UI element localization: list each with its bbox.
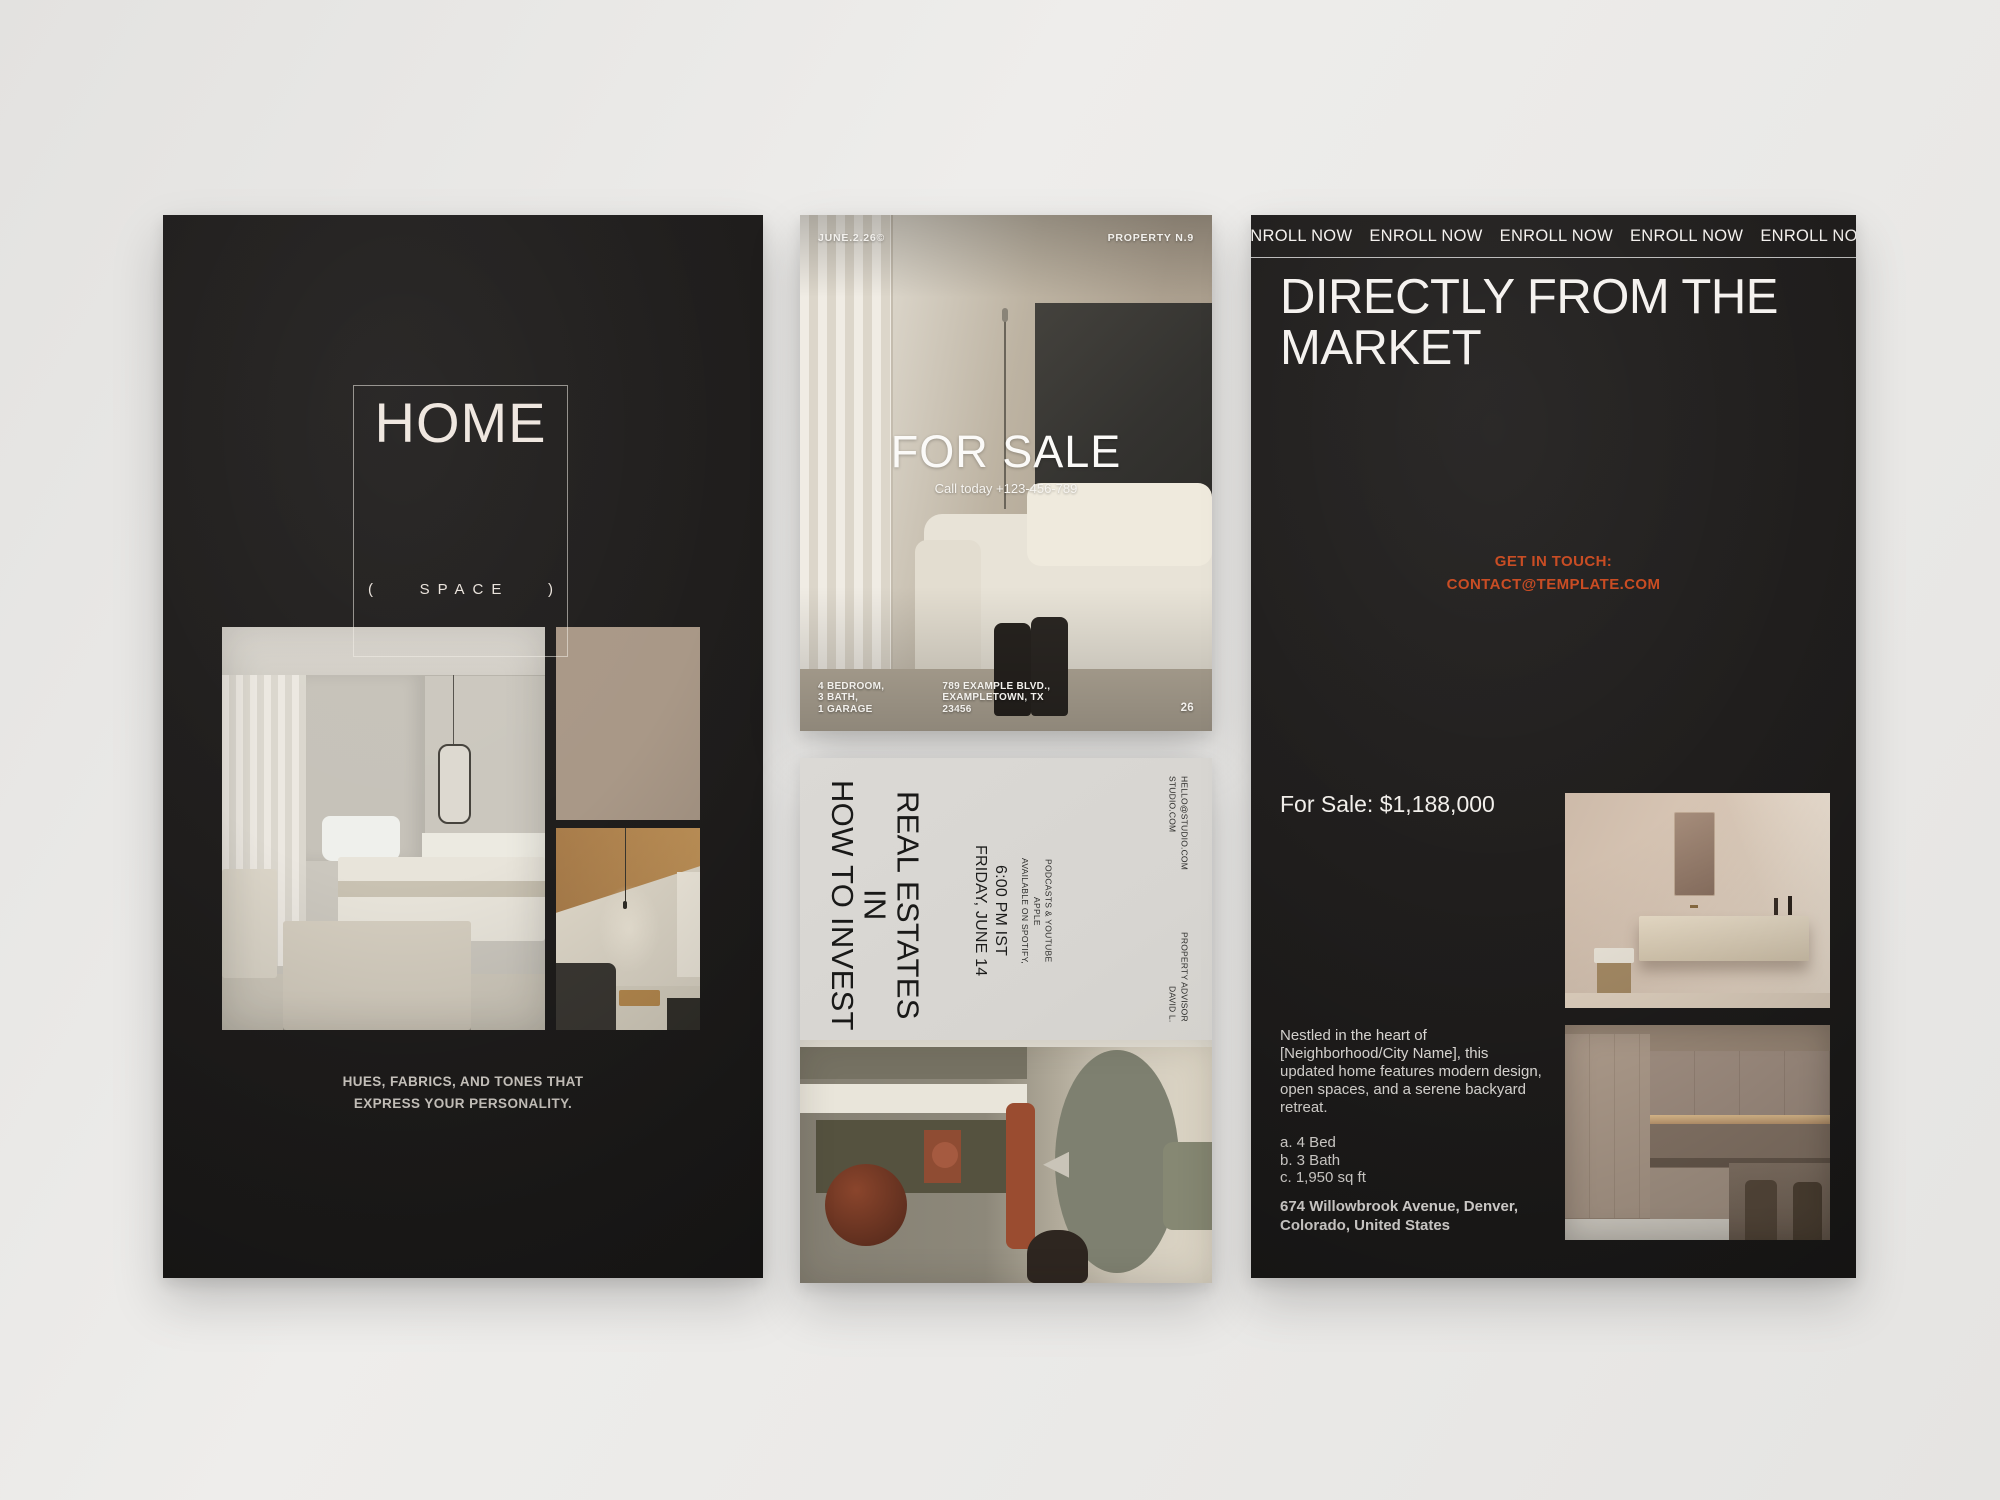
bath-floor — [1565, 993, 1830, 1008]
bathroom-photo — [1565, 793, 1830, 1008]
marquee-text: ENROLL NOW — [1630, 227, 1743, 246]
availability-line-1: AVAILABLE ON SPOTIFY, APPLE — [1018, 846, 1042, 976]
studio-email: HELLO@STUDIO.COM — [1178, 776, 1190, 916]
podcast-date: FRIDAY, JUNE 14 — [970, 843, 990, 979]
caption-line-1: HUES, FABRICS, AND TONES THAT — [163, 1071, 763, 1093]
lounge-photo — [556, 828, 700, 1030]
mirror — [1674, 812, 1716, 896]
for-sale-headline: FOR SALE — [800, 426, 1212, 478]
abstract-interior-photo — [800, 1040, 1212, 1283]
beige-accent-block — [556, 627, 700, 820]
address-line-3: 23456 — [942, 704, 1180, 716]
feature-bedrooms: 4 BEDROOM, — [818, 681, 884, 693]
contact-block: GET IN TOUCH: CONTACT@TEMPLATE.COM — [1251, 551, 1856, 596]
pendant-cord — [625, 828, 626, 903]
market-title-line-1: DIRECTLY FROM THE — [1280, 272, 1778, 323]
podcast-availability: AVAILABLE ON SPOTIFY, APPLE PODCASTS & Y… — [1018, 846, 1054, 976]
for-sale-header: JUNE.2.26© PROPERTY N.9 — [800, 215, 1212, 244]
marquee-text: ENROLL NOW — [1760, 227, 1856, 246]
spec-area: c. 1,950 sq ft — [1280, 1169, 1366, 1187]
wall-light — [599, 885, 659, 974]
property-description: Nestled in the heart of [Neighborhood/Ci… — [1280, 1027, 1544, 1117]
for-sale-footer: 4 BEDROOM, 3 BATH, 1 GARAGE 789 EXAMPLE … — [800, 681, 1212, 716]
kitchen-photo — [1565, 1025, 1830, 1240]
contact-email: CONTACT@TEMPLATE.COM — [1251, 574, 1856, 597]
studio-website: STUDIO.COM — [1166, 776, 1178, 916]
podcast-time: 6:00 PM IST — [990, 843, 1010, 979]
podcast-title-line-1: HOW TO INVEST IN — [825, 775, 891, 1035]
contact-label: GET IN TOUCH: — [1251, 551, 1856, 574]
for-sale-poster[interactable]: JUNE.2.26© PROPERTY N.9 FOR SALE Call to… — [800, 215, 1212, 731]
photo-vignette — [800, 1040, 1212, 1283]
home-space-poster[interactable]: HOME ( SPACE ) HUES, FABRICS, AND TONES … — [163, 215, 763, 1278]
podcast-poster[interactable]: HOW TO INVEST IN REAL ESTATES FRIDAY, JU… — [800, 758, 1212, 1283]
feature-garage: 1 GARAGE — [818, 704, 884, 716]
market-title-line-2: MARKET — [1280, 323, 1778, 374]
market-poster[interactable]: ENROLL NOW ENROLL NOW ENROLL NOW ENROLL … — [1251, 215, 1856, 1278]
call-to-action: Call today +123-456-789 — [800, 481, 1212, 496]
podcast-datetime: FRIDAY, JUNE 14 6:00 PM IST — [970, 843, 1010, 979]
paren-left: ( — [368, 581, 373, 598]
bottle-2 — [1788, 896, 1792, 915]
property-label: PROPERTY N.9 — [1108, 232, 1194, 244]
wood-table — [619, 990, 659, 1006]
host-role: PROPERTY ADVISOR — [1178, 908, 1190, 1022]
property-address-line-1: 674 Willowbrook Avenue, Denver, — [1280, 1197, 1518, 1216]
address-line-2: EXAMPLETOWN, TX — [942, 692, 1180, 704]
caption-line-2: EXPRESS YOUR PERSONALITY. — [163, 1093, 763, 1115]
address-block: 789 EXAMPLE BLVD., EXAMPLETOWN, TX 23456 — [942, 681, 1180, 716]
spec-list: a. 4 Bed b. 3 Bath c. 1,950 sq ft — [1280, 1134, 1366, 1187]
page-number: 26 — [1181, 702, 1194, 715]
price-label: For Sale: $1,188,000 — [1280, 791, 1495, 818]
stone-vanity — [1639, 916, 1809, 961]
feature-baths: 3 BATH, — [818, 692, 884, 704]
photo-vignette — [1565, 1025, 1830, 1240]
paren-right: ) — [548, 581, 553, 598]
marquee-text: ENROLL NOW — [1251, 227, 1352, 246]
address-line-1: 789 EXAMPLE BLVD., — [942, 681, 1180, 693]
photo-vignette — [222, 627, 545, 1030]
date-label: JUNE.2.26© — [818, 232, 885, 244]
poster-caption: HUES, FABRICS, AND TONES THAT EXPRESS YO… — [163, 1071, 763, 1116]
podcast-title: HOW TO INVEST IN REAL ESTATES — [825, 775, 924, 1035]
light-sweep — [1711, 793, 1830, 1008]
studio-contact: STUDIO.COM HELLO@STUDIO.COM — [1166, 776, 1191, 916]
dark-seat — [667, 998, 700, 1030]
bottle-1 — [1774, 898, 1778, 915]
host-name: DAVID L. — [1166, 908, 1178, 1022]
spec-beds: a. 4 Bed — [1280, 1134, 1366, 1152]
towel — [1594, 948, 1634, 963]
bedroom-photo — [222, 627, 545, 1030]
pendant-lamp — [623, 901, 627, 909]
property-address-line-2: Colorado, United States — [1280, 1216, 1518, 1235]
market-title: DIRECTLY FROM THE MARKET — [1280, 272, 1778, 374]
marquee-text: ENROLL NOW — [1369, 227, 1482, 246]
property-address: 674 Willowbrook Avenue, Denver, Colorado… — [1280, 1197, 1518, 1235]
marquee-text: ENROLL NOW — [1500, 227, 1613, 246]
enroll-marquee: ENROLL NOW ENROLL NOW ENROLL NOW ENROLL … — [1251, 215, 1856, 258]
mockup-canvas: HOME ( SPACE ) HUES, FABRICS, AND TONES … — [0, 0, 2000, 1500]
features-list: 4 BEDROOM, 3 BATH, 1 GARAGE — [818, 681, 884, 716]
availability-line-2: PODCASTS & YOUTUBE — [1042, 846, 1054, 976]
faucet — [1690, 905, 1698, 908]
window — [677, 872, 700, 977]
poster-subtitle-row: ( SPACE ) — [368, 581, 553, 598]
title-frame: HOME ( SPACE ) — [353, 385, 568, 657]
host-credit: DAVID L. PROPERTY ADVISOR — [1166, 908, 1191, 1022]
podcast-title-line-2: REAL ESTATES — [891, 775, 924, 1035]
spec-baths: b. 3 Bath — [1280, 1152, 1366, 1170]
poster-title: HOME — [368, 395, 553, 451]
subtitle-text: SPACE — [420, 581, 510, 598]
dark-sofa — [556, 963, 616, 1030]
